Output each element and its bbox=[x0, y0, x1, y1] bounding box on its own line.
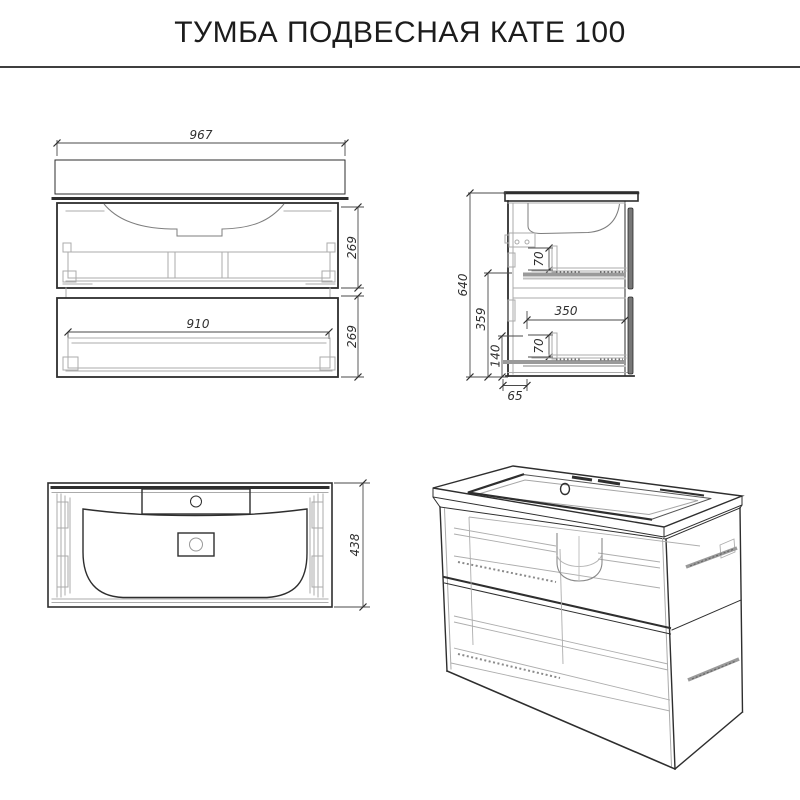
dim-label-967: 967 bbox=[190, 128, 213, 142]
dim-label-269-upper: 269 bbox=[345, 236, 359, 259]
cabinet-3d bbox=[440, 507, 743, 769]
wall-bracket bbox=[505, 233, 535, 247]
dim-side-wall-offset: 65 bbox=[500, 379, 531, 403]
lower-door-edge bbox=[628, 297, 633, 374]
lower-drawer-front: 910 bbox=[57, 298, 338, 377]
drain-cutout bbox=[178, 533, 214, 556]
dim-label-640: 640 bbox=[456, 273, 470, 296]
cabinet-interior-3d bbox=[451, 517, 735, 711]
upper-drawer-side: 70 bbox=[523, 245, 626, 279]
dim-front-inner-width: 910 bbox=[65, 317, 333, 339]
drain-trap-3d bbox=[557, 533, 602, 581]
perspective-view bbox=[433, 466, 743, 769]
slide-rails-right bbox=[310, 494, 323, 597]
drawing-sheet: ТУМБА ПОДВЕСНАЯ КАТЕ 100 967 bbox=[0, 0, 800, 800]
dim-label-70-lower: 70 bbox=[532, 338, 546, 354]
dim-label-359: 359 bbox=[474, 308, 488, 331]
slide-rails-left bbox=[57, 494, 70, 597]
faucet-hole bbox=[191, 496, 202, 507]
basin-top-outline bbox=[83, 509, 307, 598]
dim-label-910: 910 bbox=[187, 317, 210, 331]
upper-door-edge bbox=[628, 208, 633, 289]
lower-drawer-side: 70 bbox=[503, 332, 626, 367]
side-view: 70 350 70 bbox=[456, 190, 638, 404]
dim-label-140: 140 bbox=[489, 344, 503, 367]
dim-label-65: 65 bbox=[507, 389, 522, 403]
countertop-side bbox=[505, 192, 638, 201]
upper-drawer-front bbox=[57, 203, 338, 288]
dim-label-70-upper: 70 bbox=[532, 251, 546, 267]
dim-side-lower-section: 140 bbox=[489, 333, 524, 381]
dim-front-lower-height: 269 bbox=[341, 293, 364, 381]
dim-side-drawer-depth: 350 bbox=[524, 304, 629, 329]
front-view: 967 bbox=[53, 128, 364, 381]
dim-label-350: 350 bbox=[555, 304, 578, 318]
dim-label-269-lower: 269 bbox=[345, 325, 359, 348]
dim-front-upper-height: 269 bbox=[341, 204, 364, 292]
countertop-front bbox=[53, 160, 347, 199]
dim-label-438: 438 bbox=[348, 533, 362, 556]
dim-front-overall-width: 967 bbox=[54, 128, 349, 156]
technical-drawing: 967 bbox=[0, 0, 800, 800]
dim-top-overall-depth: 438 bbox=[334, 480, 370, 611]
basin-hidden-outline bbox=[104, 204, 284, 236]
basin-side-profile bbox=[528, 203, 620, 234]
top-view: 438 bbox=[48, 480, 370, 611]
